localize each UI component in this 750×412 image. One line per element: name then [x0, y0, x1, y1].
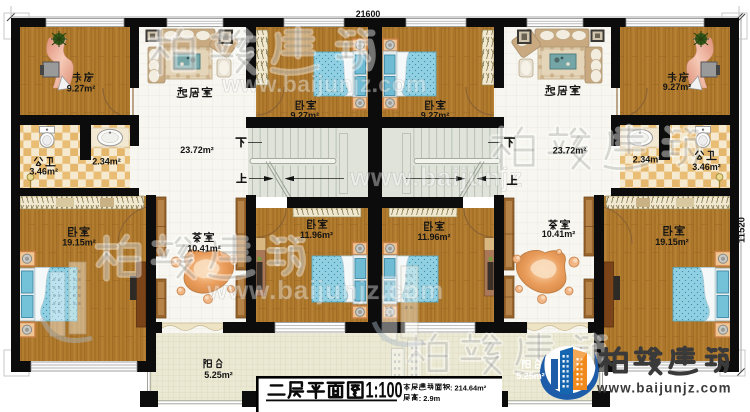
svg-text:2.34m²: 2.34m²	[92, 157, 121, 167]
svg-text:9.27m²: 9.27m²	[663, 82, 692, 92]
svg-text:2.34m²: 2.34m²	[633, 155, 662, 165]
svg-text:www.baijunjz: www.baijunjz	[349, 162, 523, 192]
svg-text:10.41m²: 10.41m²	[542, 229, 576, 239]
svg-text:23.72m²: 23.72m²	[180, 145, 214, 155]
svg-text:11.96m²: 11.96m²	[417, 232, 450, 242]
svg-text:5.25m²: 5.25m²	[204, 370, 233, 380]
svg-text:19.15m²: 19.15m²	[62, 238, 96, 248]
svg-text:9.27m²: 9.27m²	[291, 111, 320, 121]
svg-text:21600: 21600	[356, 9, 381, 19]
svg-text:23.72m²: 23.72m²	[553, 146, 587, 156]
svg-text:1:100: 1:100	[366, 377, 403, 402]
svg-text:www.baijunjz.com: www.baijunjz.com	[596, 381, 732, 396]
svg-text:9.27m²: 9.27m²	[67, 84, 96, 94]
svg-text:: 214.64m²: : 214.64m²	[450, 384, 487, 393]
svg-text:9.27m²: 9.27m²	[421, 111, 450, 121]
svg-text:11.96m²: 11.96m²	[300, 230, 333, 240]
svg-text:11520: 11520	[737, 217, 748, 243]
svg-text:10.41m²: 10.41m²	[187, 244, 221, 254]
svg-text:www.baijunjz.com: www.baijunjz.com	[221, 71, 427, 97]
svg-text:3.46m²: 3.46m²	[692, 162, 721, 172]
svg-text:5.25m²: 5.25m²	[516, 371, 545, 381]
svg-text:3.46m²: 3.46m²	[29, 167, 58, 177]
svg-text:: 2.9m: : 2.9m	[419, 394, 441, 403]
svg-text:19.15m²: 19.15m²	[655, 237, 689, 247]
